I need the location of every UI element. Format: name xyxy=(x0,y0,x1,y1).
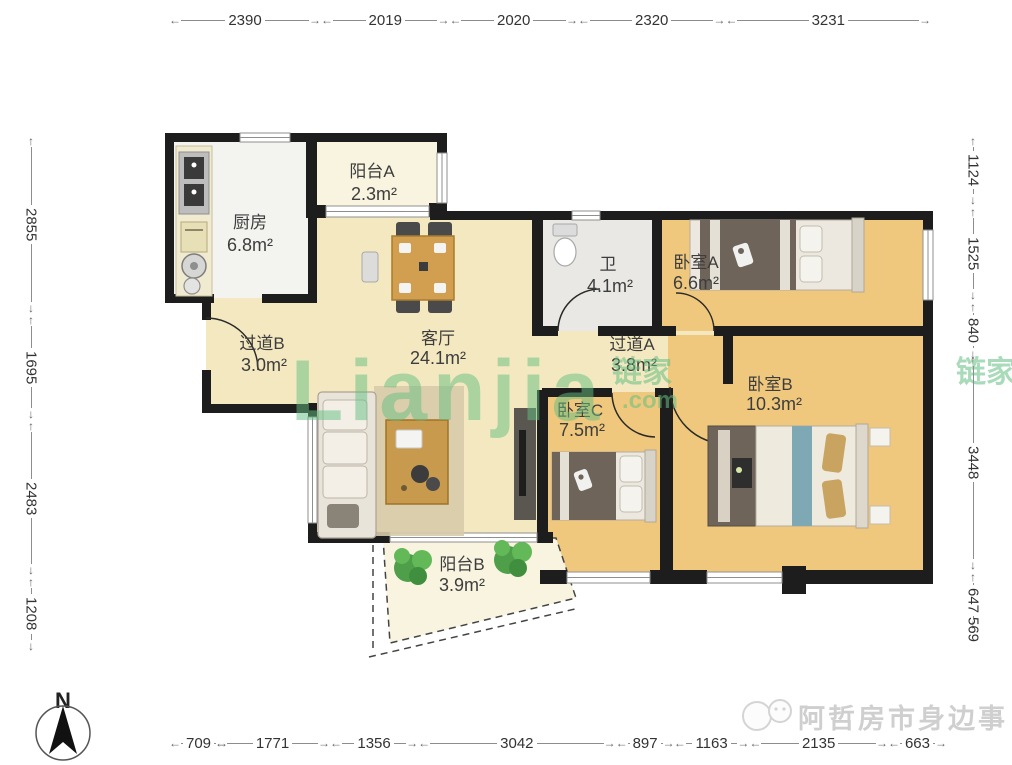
room-kitchen-area: 6.8m² xyxy=(227,235,273,255)
dimension-segment: 569 xyxy=(965,611,982,647)
dimension-value: 3448 xyxy=(965,443,982,482)
room-hallway-a-label: 过道A xyxy=(609,335,655,354)
dimension-value: 2320 xyxy=(632,12,671,29)
credit: 阿哲房市身边事 xyxy=(743,700,1008,734)
toilet-icon xyxy=(553,224,577,266)
dimension-value: 3231 xyxy=(809,12,848,29)
dimension-segment: ←1771→ xyxy=(215,735,330,752)
ruler-top: ←2390→ ←2019→ ←2020→ ←2320→ ←3231→ xyxy=(169,11,931,29)
dimension-segment: ←3231→ xyxy=(725,12,931,29)
room-balcony-b-area: 3.9m² xyxy=(439,575,485,595)
ruler-left: ↑2855↓ ↑1695↓ ↑2483↓ ↑1208↓ xyxy=(20,135,42,652)
room-kitchen-label: 厨房 xyxy=(233,213,267,232)
ruler-right: ↑1124↓ ↑1525↓ ↑840↓ ↑3448↓ ↑647↓ 569 xyxy=(962,135,984,647)
room-balcony-a-area: 2.3m² xyxy=(351,184,397,204)
dimension-segment: ←1356→ xyxy=(330,735,418,752)
dimension-value: 2483 xyxy=(23,479,40,518)
dimension-segment: ←897→ xyxy=(616,735,674,752)
dimension-value: 709 xyxy=(183,735,214,752)
room-balcony-b-label: 阳台B xyxy=(439,555,484,574)
dimension-value: 840 xyxy=(965,315,982,346)
floor-plan-page: 厨房 6.8m² 阳台A 2.3m² 卫 4.1m² 卧室A 6.6m² 过道B… xyxy=(0,0,1012,765)
dimension-value: 1124 xyxy=(965,151,982,189)
window xyxy=(572,211,600,220)
north-arrow-icon xyxy=(49,706,77,754)
dimension-segment: ←2135→ xyxy=(749,735,888,752)
dimension-segment: ↑647↓ xyxy=(965,571,982,612)
dimension-segment: ←2390→ xyxy=(169,12,321,29)
dimension-value: 1356 xyxy=(354,735,393,752)
dimension-segment: ↑1525↓ xyxy=(965,206,982,302)
room-bedroom-a-area: 6.6m² xyxy=(673,273,719,293)
room-bedroom-b-label: 卧室B xyxy=(747,375,792,394)
room-balcony-a-label: 阳台A xyxy=(349,162,395,181)
window xyxy=(567,572,650,583)
window xyxy=(240,133,290,142)
dimension-value: 2135 xyxy=(799,735,838,752)
dimension-value: 1525 xyxy=(965,234,982,273)
window xyxy=(923,230,933,300)
dimension-value: 2855 xyxy=(23,205,40,244)
dimension-value: 1208 xyxy=(23,594,40,633)
balcony-a-slider xyxy=(326,206,429,217)
dimension-segment: ←1163→ xyxy=(674,735,750,752)
dimension-segment: ↑1124↓ xyxy=(965,135,982,206)
kitchen-counter xyxy=(176,146,212,296)
lianjia-cn-watermark: 链家 xyxy=(612,355,672,389)
dimension-segment: ↑3448↓ xyxy=(965,354,982,571)
lianjia-com-watermark: .com xyxy=(622,387,678,414)
room-bedroom-b-area: 10.3m² xyxy=(746,394,802,414)
credit-logo-icon xyxy=(743,702,771,730)
dimension-segment: ↑2483↓ xyxy=(23,420,40,576)
room-hallway-b-area: 3.0m² xyxy=(241,355,287,375)
dimension-segment: ←2320→ xyxy=(578,12,726,29)
dimension-segment: ←663→ xyxy=(888,735,931,752)
wardrobe xyxy=(708,426,756,526)
room-bedroom-a-label: 卧室A xyxy=(673,253,719,272)
room-bathroom-label: 卫 xyxy=(600,255,617,274)
tv-icon xyxy=(519,430,526,496)
dimension-segment: ↑2855↓ xyxy=(23,135,40,314)
dimension-value: 2019 xyxy=(366,12,405,29)
dimension-value: 2020 xyxy=(494,12,533,29)
dimension-segment: ←2019→ xyxy=(321,12,449,29)
room-bathroom-area: 4.1m² xyxy=(587,276,633,296)
bed-bedroom-c xyxy=(552,450,656,522)
dimension-segment: ↑840↓ xyxy=(965,301,982,354)
window xyxy=(707,572,782,583)
dimension-value: 569 xyxy=(965,614,982,645)
dimension-value: 897 xyxy=(630,735,661,752)
dimension-value: 1695 xyxy=(23,348,40,387)
room-hallway-b-label: 过道B xyxy=(239,334,284,353)
credit-text: 阿哲房市身边事 xyxy=(798,703,1008,734)
dimension-value: 2390 xyxy=(225,12,264,29)
dimension-segment: ↑1695↓ xyxy=(23,314,40,420)
floor-plan: 厨房 6.8m² 阳台A 2.3m² 卫 4.1m² 卧室A 6.6m² 过道B… xyxy=(0,0,1012,765)
compass: N xyxy=(36,688,90,760)
lianjia-watermark: Lianjia xyxy=(291,343,605,439)
ruler-bottom: ←709→ ←1771→ ←1356→ ←3042→ ←897→ ←1163→ … xyxy=(169,734,931,752)
dimension-value: 663 xyxy=(902,735,933,752)
dimension-value: 1163 xyxy=(692,735,730,752)
dimension-segment: ←3042→ xyxy=(418,735,616,752)
dimension-segment: ←709→ xyxy=(169,735,215,752)
dimension-value: 1771 xyxy=(253,735,292,752)
window xyxy=(437,153,447,203)
dimension-segment: ←2020→ xyxy=(449,12,577,29)
dimension-value: 3042 xyxy=(497,735,536,752)
dimension-segment: ↑1208↓ xyxy=(23,576,40,652)
